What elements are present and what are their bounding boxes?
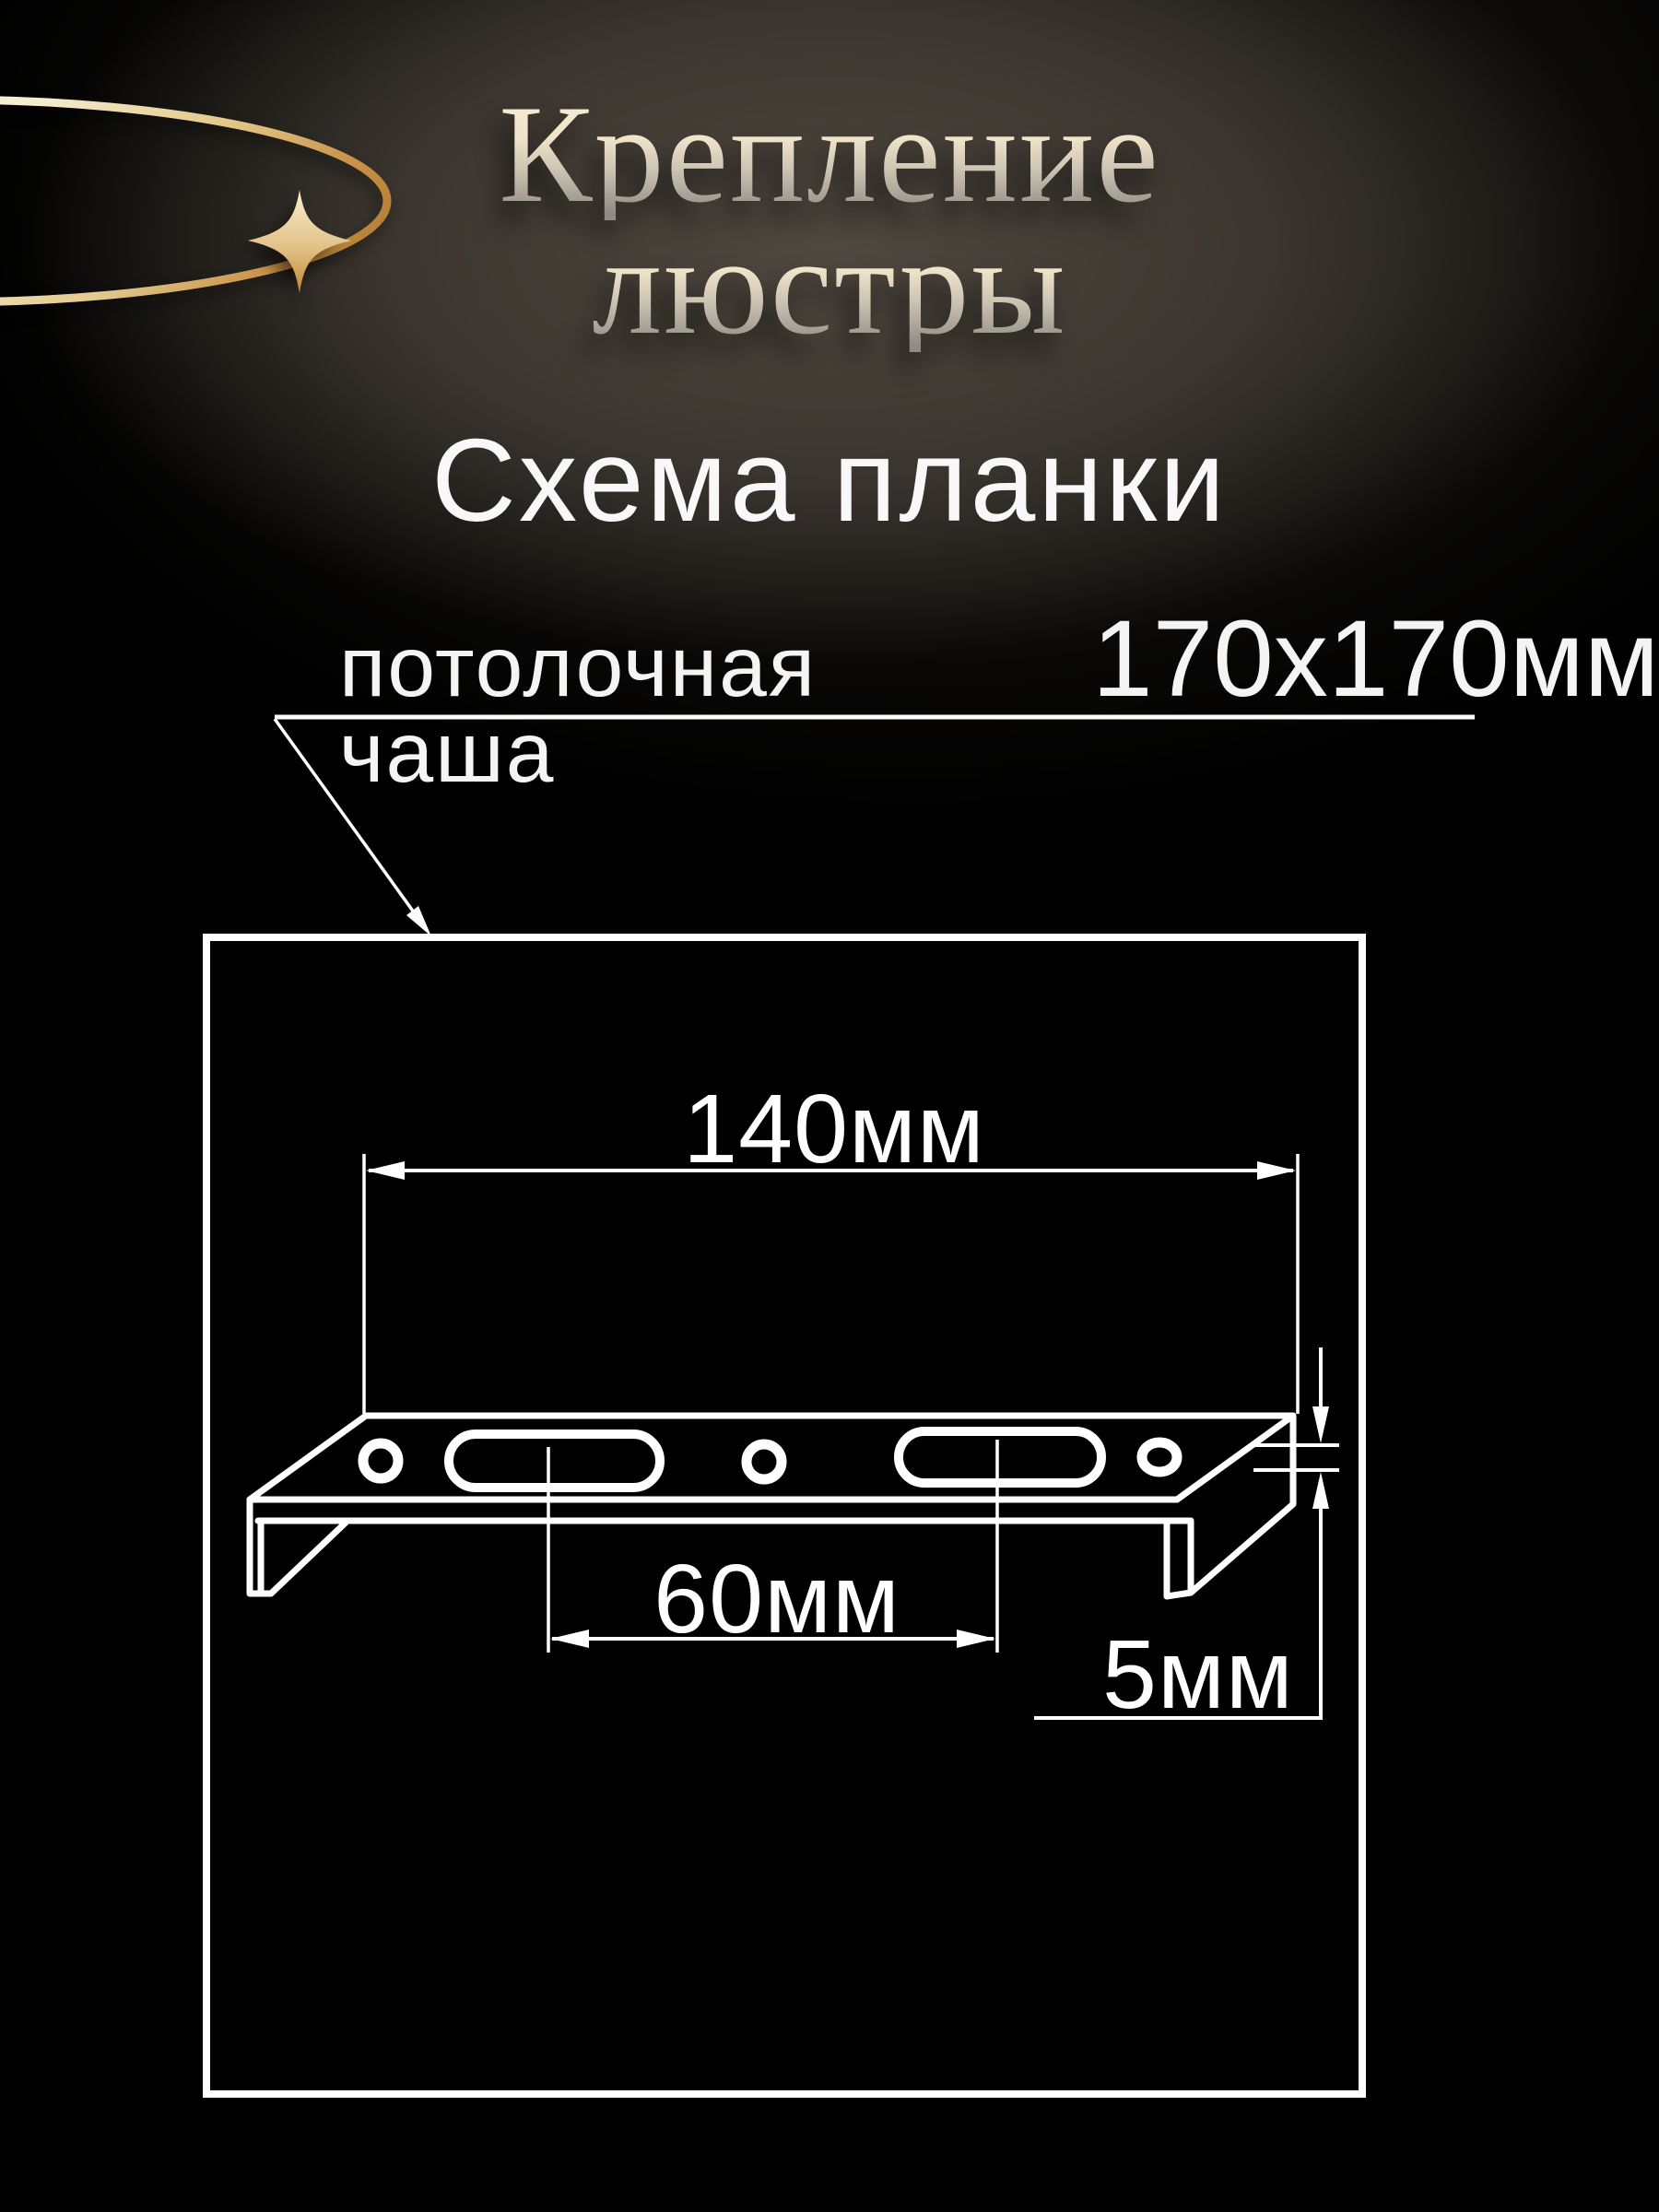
hole-center — [747, 1444, 782, 1479]
hole-right — [1142, 1442, 1177, 1472]
page-title-line2: люстры — [0, 220, 1659, 352]
dimension-label-slot-spacing: 60мм — [653, 1550, 900, 1648]
dimension-length — [364, 1154, 1298, 1414]
page-title: Крепление люстры — [0, 88, 1659, 352]
slot-left — [449, 1434, 660, 1488]
bracket-right-flange — [1167, 1416, 1293, 1596]
slot-right — [899, 1431, 1101, 1483]
dimension-label-length: 140мм — [683, 1080, 985, 1178]
callout-value: 170x170мм — [1092, 605, 1659, 713]
callout-label: потолочная чаша — [339, 624, 1041, 795]
bracket-left-flange — [250, 1500, 346, 1594]
subtitle: Схема планки — [0, 422, 1659, 539]
page-title-line1: Крепление — [0, 88, 1659, 220]
bracket-top-face — [250, 1416, 1293, 1500]
callout: потолочная чаша 170x170мм — [339, 605, 1659, 795]
hole-left — [363, 1443, 398, 1478]
dimension-label-thickness: 5мм — [1102, 1626, 1294, 1724]
page: Крепление люстры Схема планки потолочная… — [0, 0, 1659, 2212]
